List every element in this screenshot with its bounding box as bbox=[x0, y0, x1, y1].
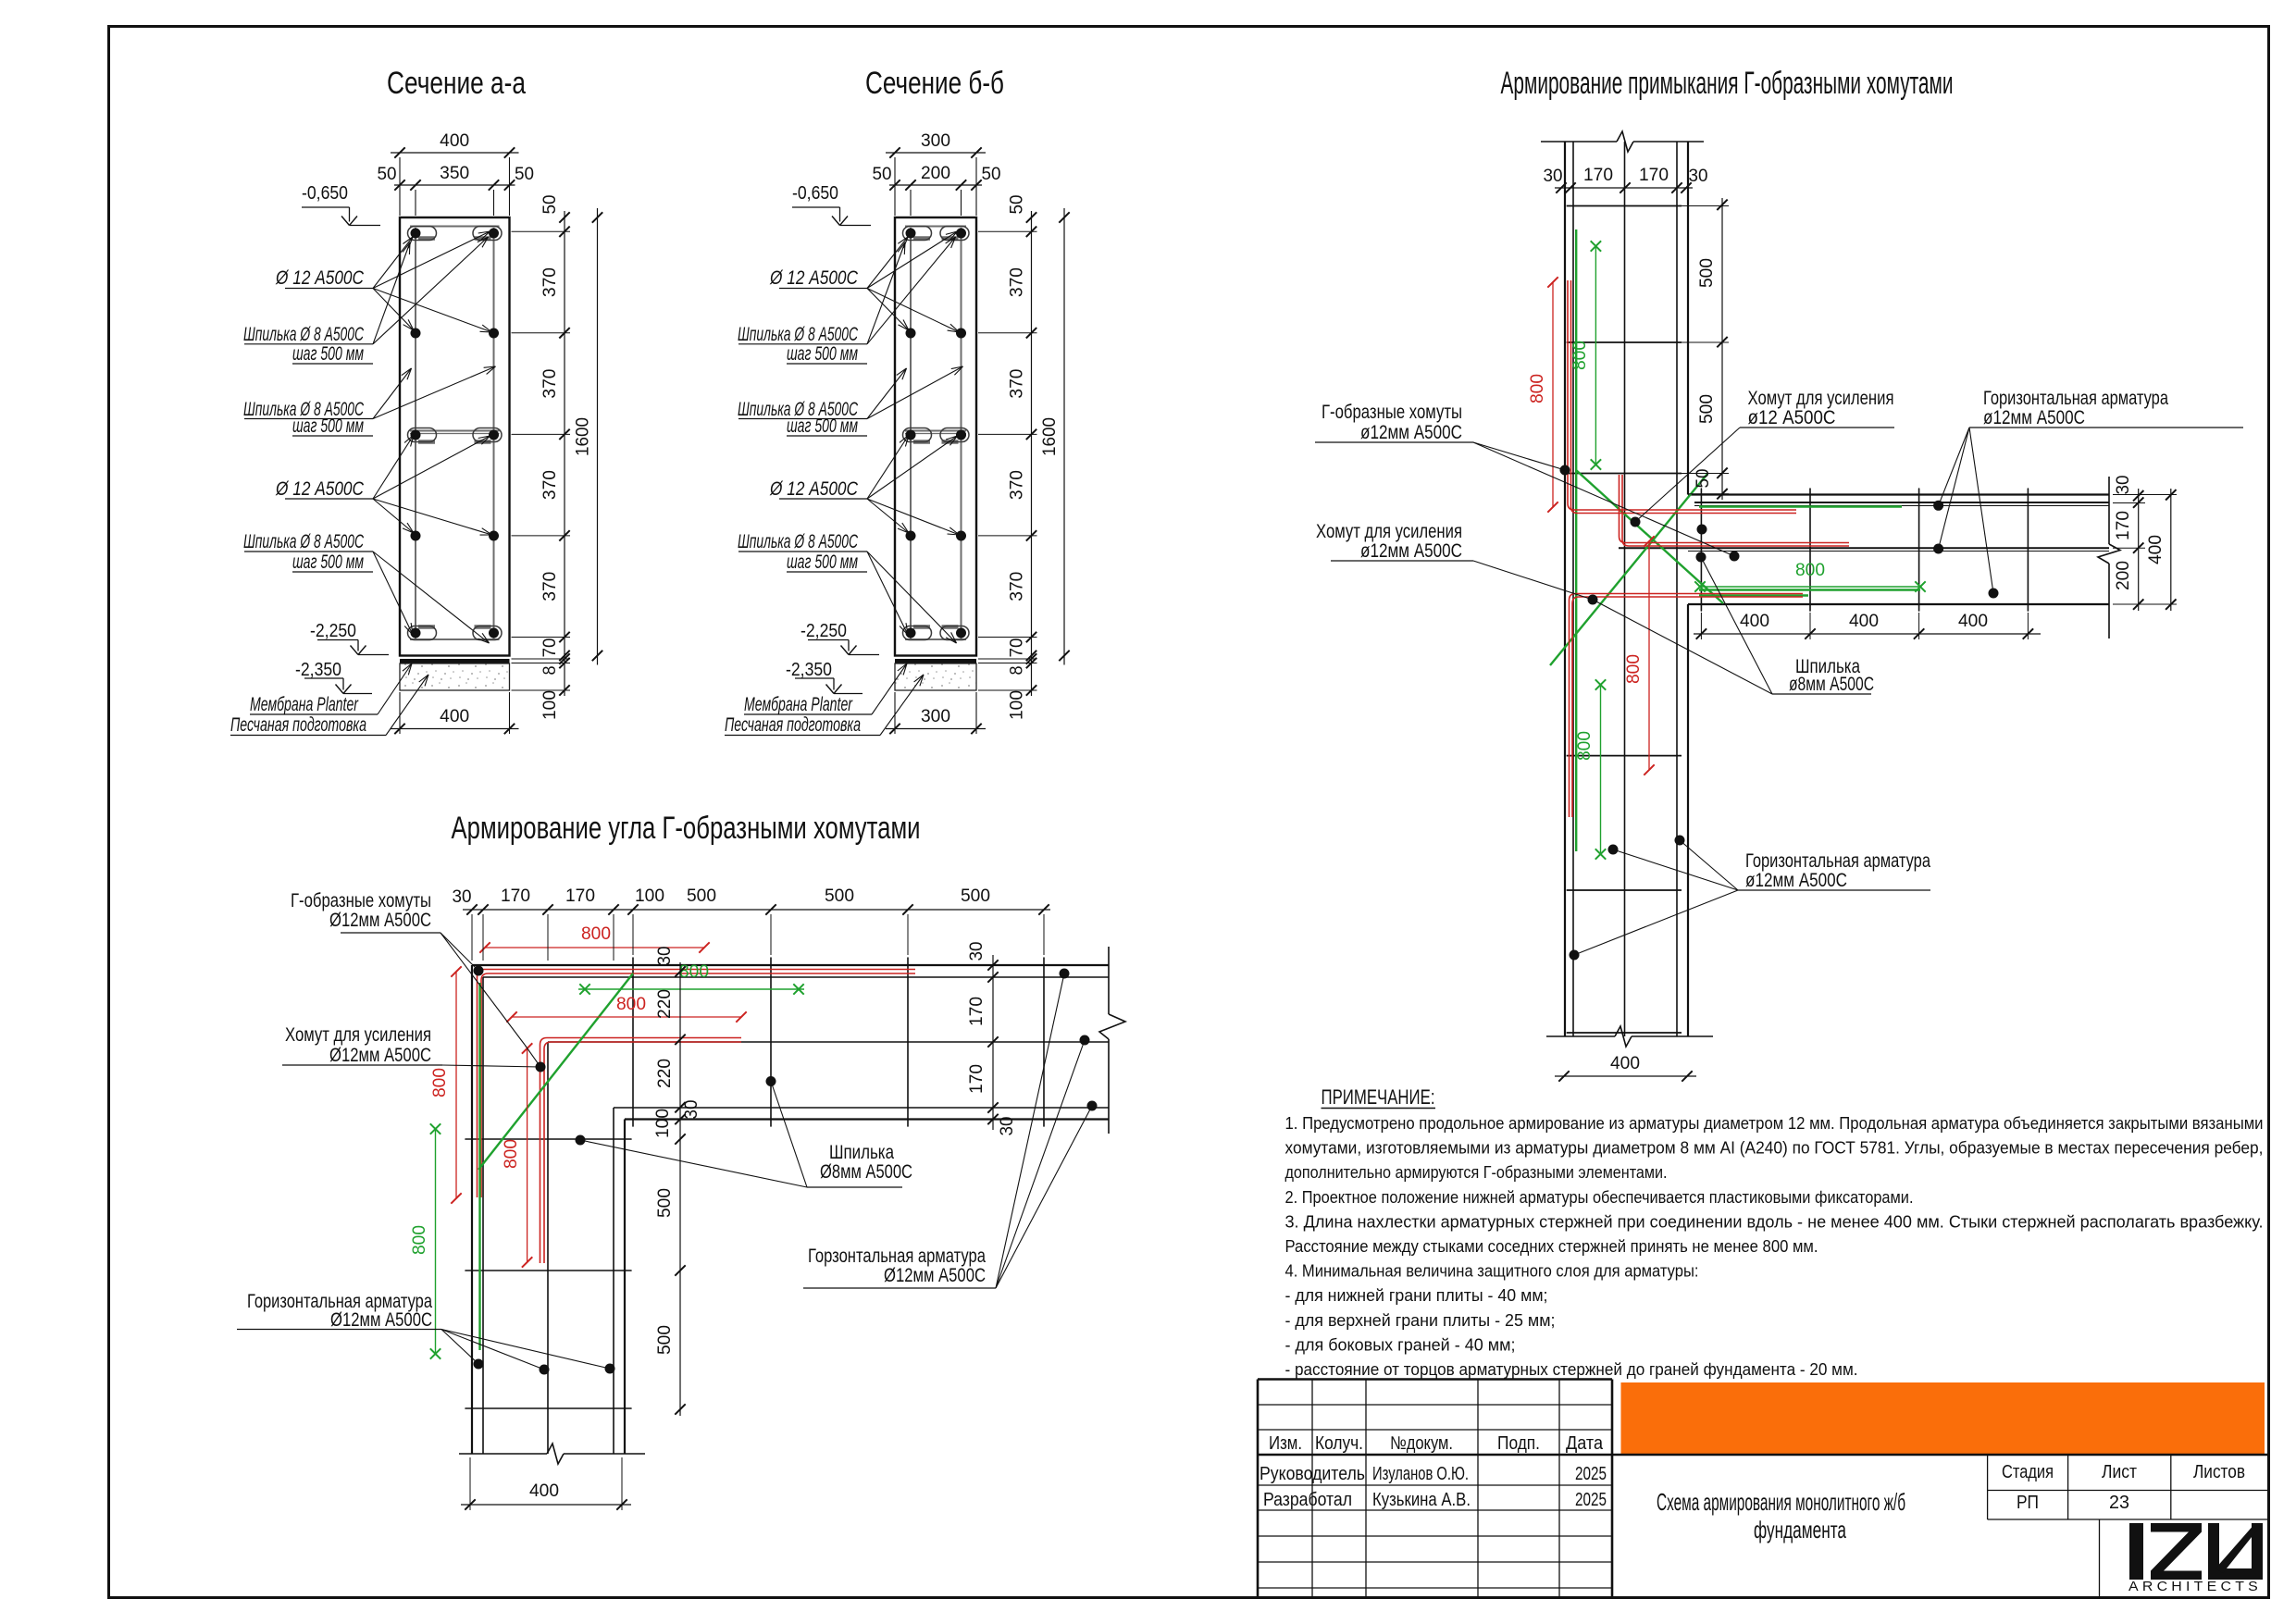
svg-text:400: 400 bbox=[529, 1481, 559, 1501]
svg-text:2025: 2025 bbox=[1575, 1464, 1607, 1484]
svg-text:170: 170 bbox=[1583, 166, 1613, 185]
svg-text:Армирование примыкания Г-образ: Армирование примыкания Г-образными хомут… bbox=[1501, 66, 1954, 101]
svg-text:500: 500 bbox=[687, 886, 716, 906]
svg-text:-2,350: -2,350 bbox=[295, 660, 341, 680]
svg-text:220: 220 bbox=[655, 1059, 675, 1088]
svg-text:370: 370 bbox=[1008, 572, 1027, 601]
svg-text:дополнительно армируются Г-обр: дополнительно армируются Г-образными эле… bbox=[1285, 1162, 1668, 1182]
svg-text:100: 100 bbox=[1008, 690, 1027, 720]
svg-text:50: 50 bbox=[873, 165, 892, 184]
svg-text:Хомут для усиления: Хомут для усиления bbox=[285, 1024, 431, 1046]
svg-text:Армирование угла Г-образными х: Армирование угла Г-образными хомутами bbox=[452, 811, 921, 846]
svg-text:хомутами, изготовляемыми из ар: хомутами, изготовляемыми из арматуры диа… bbox=[1285, 1138, 2264, 1158]
svg-text:Кузькина А.В.: Кузькина А.В. bbox=[1372, 1490, 1471, 1510]
svg-text:Г-образные хомуты: Г-образные хомуты bbox=[1322, 402, 1462, 423]
svg-text:370: 370 bbox=[540, 470, 560, 500]
svg-text:Шпилька Ø 8 А500С: Шпилька Ø 8 А500С bbox=[738, 324, 859, 345]
svg-text:300: 300 bbox=[921, 131, 950, 151]
svg-text:№докум.: №докум. bbox=[1390, 1433, 1453, 1454]
svg-text:30: 30 bbox=[655, 947, 675, 966]
svg-text:800: 800 bbox=[502, 1139, 521, 1169]
svg-text:Шпилька Ø 8 А500С: Шпилька Ø 8 А500С bbox=[243, 324, 365, 345]
svg-text:170: 170 bbox=[565, 886, 595, 906]
svg-text:30: 30 bbox=[2114, 476, 2133, 495]
svg-text:ø12мм А500С: ø12мм А500С bbox=[1360, 540, 1462, 562]
svg-text:Горизонтальная арматура: Горизонтальная арматура bbox=[1983, 388, 2168, 409]
svg-text:фундамента: фундамента bbox=[1754, 1516, 1846, 1543]
svg-text:500: 500 bbox=[961, 886, 990, 906]
svg-text:100: 100 bbox=[653, 1109, 673, 1138]
svg-text:50: 50 bbox=[378, 165, 397, 184]
svg-text:-0,650: -0,650 bbox=[792, 183, 838, 204]
svg-text:2. Проектное положение нижней: 2. Проектное положение нижней арматуры о… bbox=[1285, 1187, 1914, 1207]
svg-text:800: 800 bbox=[1575, 731, 1595, 761]
svg-text:3. Длина нахлестки арматурных: 3. Длина нахлестки арматурных стержней п… bbox=[1285, 1211, 2264, 1231]
svg-text:400: 400 bbox=[1849, 612, 1879, 631]
svg-text:-2,250: -2,250 bbox=[310, 621, 356, 641]
svg-text:Горизонтальная арматура: Горизонтальная арматура bbox=[1745, 850, 1930, 872]
svg-text:400: 400 bbox=[1740, 612, 1769, 631]
svg-text:370: 370 bbox=[540, 572, 560, 601]
svg-text:Ø8мм А500С: Ø8мм А500С bbox=[820, 1161, 912, 1183]
svg-text:500: 500 bbox=[825, 886, 854, 906]
svg-text:шаг 500 мм: шаг 500 мм bbox=[787, 552, 858, 573]
svg-text:200: 200 bbox=[2114, 561, 2133, 590]
svg-text:220: 220 bbox=[655, 989, 675, 1019]
svg-text:Хомут для усиления: Хомут для усиления bbox=[1316, 521, 1462, 542]
svg-text:Ø 12 А500С: Ø 12 А500С bbox=[275, 478, 365, 500]
svg-text:ПРИМЕЧАНИЕ:: ПРИМЕЧАНИЕ: bbox=[1322, 1085, 1435, 1109]
svg-text:500: 500 bbox=[655, 1325, 675, 1355]
svg-text:1600: 1600 bbox=[574, 417, 593, 456]
svg-text:Изуланов О.Ю.: Изуланов О.Ю. bbox=[1372, 1464, 1469, 1484]
svg-text:400: 400 bbox=[2146, 535, 2166, 564]
svg-text:Шпилька Ø 8 А500С: Шпилька Ø 8 А500С bbox=[738, 531, 859, 552]
svg-text:Руководитель: Руководитель bbox=[1260, 1464, 1365, 1484]
svg-text:30: 30 bbox=[682, 1100, 701, 1120]
svg-text:Хомут для усиления: Хомут для усиления bbox=[1748, 388, 1894, 409]
svg-text:Песчаная подготовка: Песчаная подготовка bbox=[230, 714, 366, 736]
svg-text:30: 30 bbox=[1689, 167, 1708, 186]
svg-text:-2,350: -2,350 bbox=[786, 660, 832, 680]
svg-text:-2,250: -2,250 bbox=[800, 621, 847, 641]
svg-text:70: 70 bbox=[1008, 638, 1027, 658]
svg-text:100: 100 bbox=[635, 886, 664, 906]
svg-text:70: 70 bbox=[540, 638, 560, 658]
svg-text:шаг 500 мм: шаг 500 мм bbox=[787, 343, 858, 365]
svg-text:400: 400 bbox=[440, 707, 469, 726]
svg-text:шаг 500 мм: шаг 500 мм bbox=[292, 552, 364, 573]
svg-text:Мембрана Planter: Мембрана Planter bbox=[744, 694, 853, 715]
svg-text:Листов: Листов bbox=[2193, 1462, 2245, 1482]
svg-text:- для верхней грани плиты - 25: - для верхней грани плиты - 25 мм; bbox=[1285, 1310, 1556, 1330]
svg-text:шаг 500 мм: шаг 500 мм bbox=[292, 415, 364, 437]
svg-text:50: 50 bbox=[540, 195, 560, 215]
svg-text:Ø 12 А500С: Ø 12 А500С bbox=[275, 267, 365, 289]
svg-text:шаг 500 мм: шаг 500 мм bbox=[292, 343, 364, 365]
svg-text:350: 350 bbox=[440, 164, 469, 183]
svg-text:50: 50 bbox=[982, 165, 1001, 184]
svg-text:800: 800 bbox=[1624, 654, 1644, 684]
svg-text:Расстояние между стыками сосед: Расстояние между стыками соседних стержн… bbox=[1285, 1236, 1818, 1256]
svg-text:30: 30 bbox=[967, 942, 987, 961]
svg-text:370: 370 bbox=[1008, 369, 1027, 399]
svg-text:370: 370 bbox=[1008, 267, 1027, 297]
svg-text:Схема армирования монолитного: Схема армирования монолитного ж/б bbox=[1657, 1488, 1905, 1516]
svg-text:Дата: Дата bbox=[1566, 1433, 1604, 1454]
svg-text:170: 170 bbox=[2114, 511, 2133, 540]
svg-text:Стадия: Стадия bbox=[2002, 1462, 2054, 1482]
svg-text:2025: 2025 bbox=[1575, 1490, 1607, 1510]
svg-text:Мембрана Planter: Мембрана Planter bbox=[250, 694, 359, 715]
svg-text:Ø12мм А500С: Ø12мм А500С bbox=[330, 1309, 432, 1331]
svg-text:Ø 12 А500С: Ø 12 А500С bbox=[769, 267, 859, 289]
svg-text:170: 170 bbox=[967, 1064, 987, 1094]
svg-text:500: 500 bbox=[1697, 394, 1717, 424]
svg-text:23: 23 bbox=[2109, 1493, 2129, 1513]
svg-text:ø12мм А500С: ø12мм А500С bbox=[1360, 422, 1462, 443]
svg-text:Колуч.: Колуч. bbox=[1315, 1433, 1363, 1454]
svg-text:Г-образные хомуты: Г-образные хомуты bbox=[291, 890, 431, 911]
svg-text:30: 30 bbox=[1544, 167, 1563, 186]
svg-text:ø12мм А500С: ø12мм А500С bbox=[1745, 870, 1847, 891]
svg-text:Лист: Лист bbox=[2102, 1462, 2137, 1482]
svg-text:1. Предусмотрено продольное ар: 1. Предусмотрено продольное армирование … bbox=[1285, 1113, 2264, 1133]
svg-text:ø12мм А500С: ø12мм А500С bbox=[1983, 407, 2085, 428]
svg-text:4. Минимальная величина защитн: 4. Минимальная величина защитного слоя д… bbox=[1285, 1261, 1699, 1281]
svg-text:800: 800 bbox=[581, 924, 611, 944]
svg-text:800: 800 bbox=[1795, 561, 1825, 580]
svg-text:Ø12мм А500С: Ø12мм А500С bbox=[884, 1265, 986, 1286]
svg-text:Сечение а-а: Сечение а-а bbox=[387, 66, 526, 101]
svg-text:Шпилька: Шпилька bbox=[829, 1142, 894, 1163]
svg-text:- расстояние от торцов арматур: - расстояние от торцов арматурных стержн… bbox=[1285, 1359, 1858, 1379]
svg-text:ø8мм А500С: ø8мм А500С bbox=[1789, 674, 1874, 695]
svg-text:Разработал: Разработал bbox=[1263, 1490, 1352, 1510]
svg-text:ARCHITECTS: ARCHITECTS bbox=[2128, 1579, 2262, 1594]
svg-text:50: 50 bbox=[1008, 195, 1027, 215]
svg-text:Шпилька Ø 8 А500С: Шпилька Ø 8 А500С bbox=[243, 531, 365, 552]
svg-text:200: 200 bbox=[921, 164, 950, 183]
svg-text:400: 400 bbox=[440, 131, 469, 151]
svg-text:800: 800 bbox=[679, 962, 709, 982]
svg-text:170: 170 bbox=[501, 886, 530, 906]
svg-text:400: 400 bbox=[1610, 1054, 1640, 1073]
svg-text:800: 800 bbox=[410, 1225, 429, 1255]
svg-text:Ø 12 А500С: Ø 12 А500С bbox=[769, 478, 859, 500]
svg-text:500: 500 bbox=[1697, 258, 1717, 288]
svg-text:300: 300 bbox=[921, 707, 950, 726]
svg-text:Песчаная подготовка: Песчаная подготовка bbox=[725, 714, 861, 736]
svg-text:170: 170 bbox=[967, 997, 987, 1026]
svg-text:Ø12мм А500С: Ø12мм А500С bbox=[329, 1045, 431, 1066]
svg-text:Горзонтальная арматура: Горзонтальная арматура bbox=[808, 1246, 986, 1267]
svg-text:8: 8 bbox=[540, 666, 560, 676]
svg-text:1600: 1600 bbox=[1040, 417, 1060, 456]
svg-text:шаг 500 мм: шаг 500 мм bbox=[787, 415, 858, 437]
svg-text:50: 50 bbox=[1694, 469, 1713, 489]
svg-text:Подп.: Подп. bbox=[1497, 1433, 1540, 1454]
svg-text:500: 500 bbox=[655, 1188, 675, 1218]
svg-text:370: 370 bbox=[540, 369, 560, 399]
svg-text:ø12 А500С: ø12 А500С bbox=[1748, 407, 1836, 428]
svg-text:Сечение б-б: Сечение б-б bbox=[865, 66, 1004, 101]
svg-text:8: 8 bbox=[1008, 666, 1027, 676]
svg-text:- для нижней грани плиты - 40: - для нижней грани плиты - 40 мм; bbox=[1285, 1285, 1548, 1305]
svg-text:170: 170 bbox=[1639, 166, 1669, 185]
svg-text:800: 800 bbox=[430, 1068, 450, 1097]
svg-text:800: 800 bbox=[1570, 341, 1590, 370]
svg-text:РП: РП bbox=[2017, 1493, 2039, 1513]
svg-text:Изм.: Изм. bbox=[1269, 1433, 1302, 1454]
svg-text:100: 100 bbox=[540, 690, 560, 720]
svg-text:800: 800 bbox=[616, 995, 646, 1014]
svg-text:50: 50 bbox=[515, 165, 534, 184]
svg-text:Ø12мм А500С: Ø12мм А500С bbox=[329, 910, 431, 931]
svg-text:30: 30 bbox=[998, 1117, 1017, 1136]
svg-text:370: 370 bbox=[1008, 470, 1027, 500]
svg-text:-0,650: -0,650 bbox=[302, 183, 348, 204]
svg-text:400: 400 bbox=[1958, 612, 1988, 631]
svg-text:30: 30 bbox=[453, 887, 472, 907]
svg-text:370: 370 bbox=[540, 267, 560, 297]
svg-text:- для боковых граней - 40 мм;: - для боковых граней - 40 мм; bbox=[1285, 1334, 1516, 1354]
svg-text:800: 800 bbox=[1528, 374, 1547, 403]
